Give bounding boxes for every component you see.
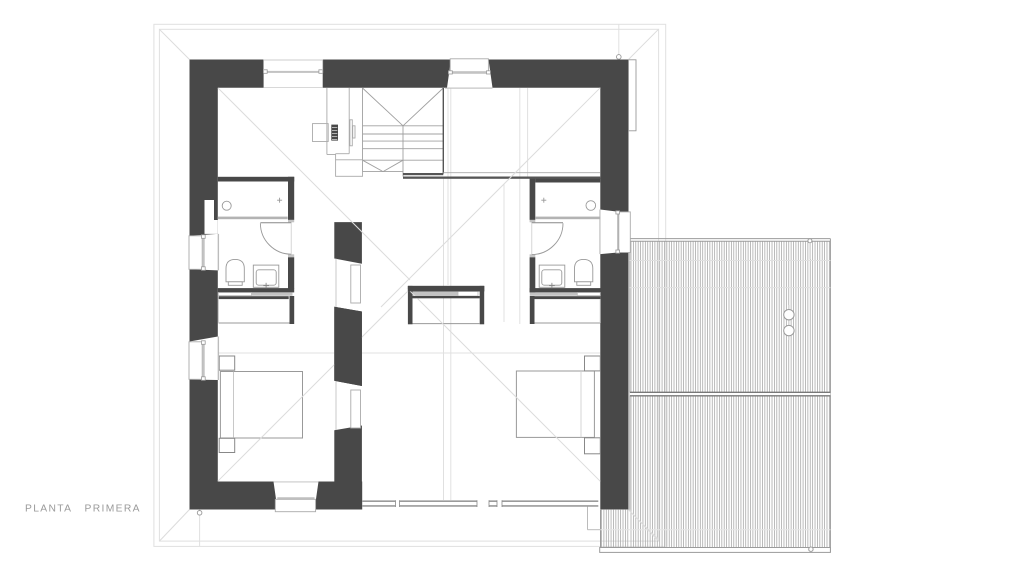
svg-text:PLANTA: PLANTA	[25, 503, 72, 514]
svg-text:PRIMERA: PRIMERA	[85, 503, 141, 514]
